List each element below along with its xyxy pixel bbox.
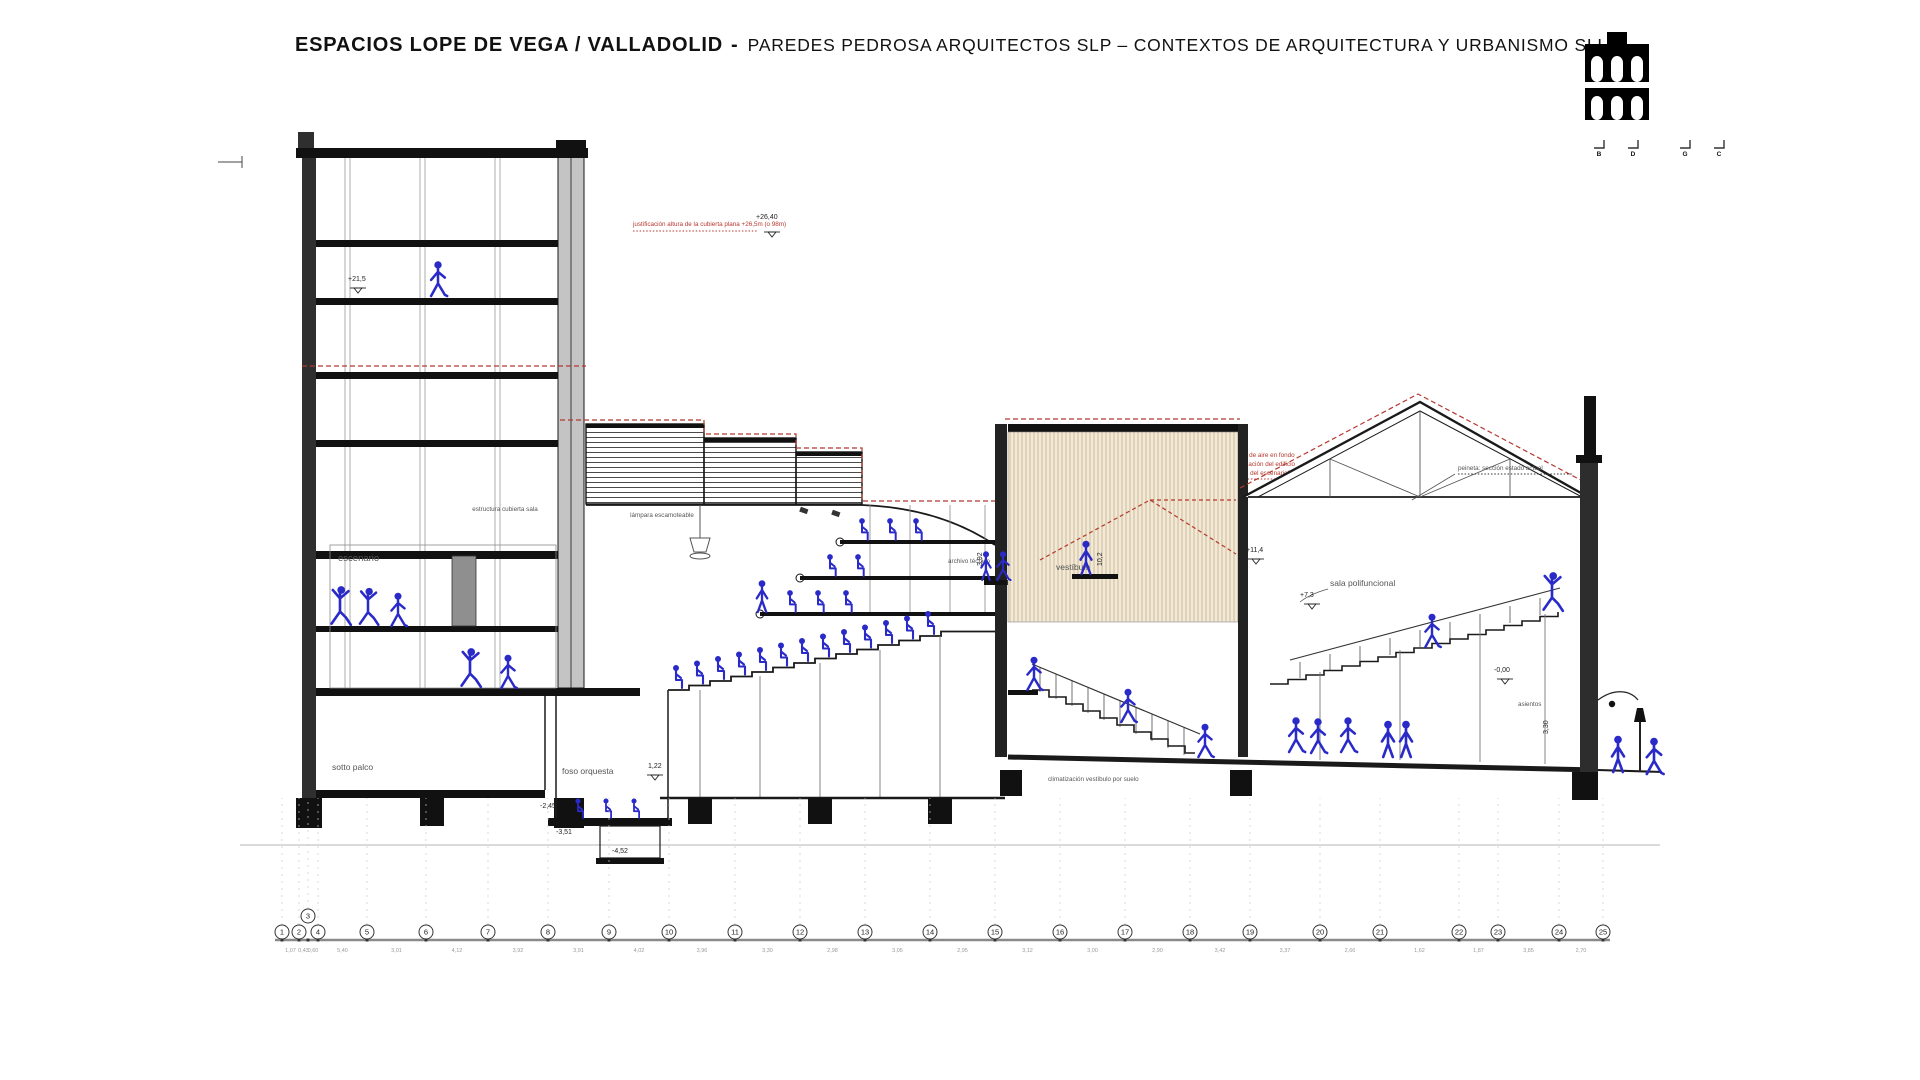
louvered-ceiling-bands xyxy=(586,424,862,504)
grid-bubble-number: 22 xyxy=(1455,928,1463,937)
grid-bubble-number: 11 xyxy=(731,928,739,937)
grid-bubble-number: 6 xyxy=(424,928,428,937)
dim-330: 3,30 xyxy=(1543,720,1550,734)
person-figure xyxy=(913,518,922,540)
label-sotto-palco: sotto palco xyxy=(332,762,373,772)
elevation-73: +7,3 xyxy=(1300,592,1314,599)
grid-bubble-number: 17 xyxy=(1121,928,1129,937)
elevation-21: +21,5 xyxy=(348,276,366,283)
grid-bubble-number: 15 xyxy=(991,928,999,937)
grid-dimension: 3,37 xyxy=(1280,948,1291,954)
person-figure xyxy=(778,643,787,666)
grid-bubble-number: 7 xyxy=(486,928,490,937)
grand-stair xyxy=(1032,664,1200,755)
grid-dimension: 1,62 xyxy=(1414,948,1425,954)
person-figure xyxy=(1198,724,1213,757)
roof-height-annotation: justificación altura de la cubierta plan… xyxy=(632,214,786,237)
person-figure xyxy=(757,580,768,612)
grid-bubble-number: 12 xyxy=(796,928,804,937)
grid-dimension: 3,96 xyxy=(697,948,708,954)
person-figure xyxy=(673,665,682,688)
person-figure xyxy=(431,261,447,296)
person-figure xyxy=(1425,614,1440,647)
grid-bubble-number: 21 xyxy=(1376,928,1384,937)
label-escenario: escenario xyxy=(338,553,379,564)
label-sala-polifuncional: sala polifuncional xyxy=(1330,578,1395,588)
grid-dimension: 5,40 xyxy=(337,948,348,954)
grid-bubble-number: 24 xyxy=(1555,928,1563,937)
grid-bubble-number: 19 xyxy=(1246,928,1254,937)
person-figure xyxy=(1400,721,1412,757)
grid-bubble-number: 16 xyxy=(1056,928,1064,937)
grid-dimension: 3,85 xyxy=(1523,948,1534,954)
elevation-m351: -3,51 xyxy=(556,829,572,836)
person-figure xyxy=(736,652,745,675)
grid-dimension: 3,00 xyxy=(1087,948,1098,954)
label-climatizacion: climatización vestíbulo por suelo xyxy=(1048,776,1139,783)
grid-tick xyxy=(307,939,310,942)
grid-bubble-number: 5 xyxy=(365,928,369,937)
person-figure xyxy=(1121,689,1136,722)
grid-dimension: 4,12 xyxy=(452,948,463,954)
grid-bubble-number: 18 xyxy=(1186,928,1194,937)
person-figure xyxy=(332,586,351,625)
polyfunctional-hall: sala polifuncional asientos 3,30 +7,3 -0… xyxy=(1238,394,1592,764)
grid-bubble-number: 23 xyxy=(1494,928,1502,937)
person-figure xyxy=(855,554,864,576)
person-figure xyxy=(631,798,639,818)
grid-bubble-number: 4 xyxy=(316,928,320,937)
orchestra-pit: foso orquesta 1,22 -2,45 -3,51 -4,52 xyxy=(540,690,672,864)
spotlight-icons xyxy=(799,507,840,517)
roof-note-text: justificación altura de la cubierta plan… xyxy=(632,221,786,228)
person-figure xyxy=(887,518,896,540)
grid-bubble-number: 10 xyxy=(665,928,673,937)
grid-dimension: 2,66 xyxy=(1345,948,1356,954)
grid-dimension: 3,92 xyxy=(513,948,524,954)
grid-dimension: 4,02 xyxy=(634,948,645,954)
person-figure xyxy=(1289,717,1305,752)
person-figure xyxy=(391,593,406,626)
person-figure xyxy=(1647,738,1664,774)
grid-dimension: 2,98 xyxy=(827,948,838,954)
person-figure xyxy=(603,798,611,818)
peineta-note-text: peineta: sección estado actual xyxy=(1458,465,1543,472)
label-foso-orquesta: foso orquesta xyxy=(562,766,614,776)
grid-dimension: 3,01 xyxy=(391,948,402,954)
grid-dimension: 1,07 xyxy=(285,948,296,954)
person-figure xyxy=(843,590,852,612)
label-asientos: asientos xyxy=(1518,701,1541,708)
grid-dimension: 3,30 xyxy=(762,948,773,954)
elevation-2640: +26,40 xyxy=(756,214,778,221)
grid-dimension: 2,90 xyxy=(1152,948,1163,954)
label-estructura: estructura cubierta sala xyxy=(472,506,538,513)
dim-122: 1,22 xyxy=(648,763,662,770)
grid-dimension: 3,91 xyxy=(573,948,584,954)
person-figure xyxy=(694,661,703,684)
person-figure xyxy=(827,554,836,576)
person-figure xyxy=(859,518,868,540)
grid-bubble-number: 1 xyxy=(280,928,284,937)
person-figure xyxy=(1027,657,1042,690)
person-figure xyxy=(1612,736,1624,772)
person-figure xyxy=(1311,718,1327,753)
grid-bubble-number: 14 xyxy=(926,928,934,937)
person-figure xyxy=(799,638,808,661)
label-lampara: lámpara escamoteable xyxy=(630,512,694,519)
person-figure xyxy=(883,620,892,643)
person-figure xyxy=(820,634,829,657)
grid-dimension: 0,60 xyxy=(308,948,319,954)
grid-dimension: 2,95 xyxy=(957,948,968,954)
dim-102: 10,2 xyxy=(1097,552,1104,566)
person-figure xyxy=(787,590,796,612)
grid-bubble-number: 2 xyxy=(297,928,301,937)
person-figure xyxy=(841,629,850,652)
elevation-000: -0,00 xyxy=(1494,667,1510,674)
person-figure xyxy=(815,590,824,612)
elevation-114: +11,4 xyxy=(1246,547,1263,554)
grid-dimension: 3,12 xyxy=(1022,948,1033,954)
street-lamp-icon xyxy=(1598,692,1646,772)
person-figure xyxy=(862,625,871,648)
grid-bubble-number: 3 xyxy=(306,912,310,921)
grid-bubble-number: 8 xyxy=(546,928,550,937)
person-figure xyxy=(757,647,766,670)
section-drawing: escenario sotto palco +21,5 foso orquest… xyxy=(0,0,1920,1080)
grid-dimension: 3,42 xyxy=(1215,948,1226,954)
grid-bubble-number: 13 xyxy=(861,928,869,937)
sheet: ESPACIOS LOPE DE VEGA / VALLADOLID-PARED… xyxy=(0,0,1920,1080)
grid-bubble-number: 9 xyxy=(607,928,611,937)
grid-dimension: 1,87 xyxy=(1473,948,1484,954)
rake-steps xyxy=(1270,612,1558,684)
grid-dimension: 3,05 xyxy=(892,948,903,954)
elevation-m452: -4,52 xyxy=(612,848,628,855)
person-figure xyxy=(904,616,913,639)
grid-bubble-number: 20 xyxy=(1316,928,1324,937)
person-figure xyxy=(1382,721,1394,757)
person-figure xyxy=(501,655,516,688)
person-figure xyxy=(360,588,378,625)
person-figure xyxy=(715,656,724,679)
person-figure xyxy=(1341,717,1357,752)
person-figure xyxy=(462,648,481,687)
grid-dimension: 2,70 xyxy=(1576,948,1587,954)
grid-bubble-number: 25 xyxy=(1599,928,1607,937)
